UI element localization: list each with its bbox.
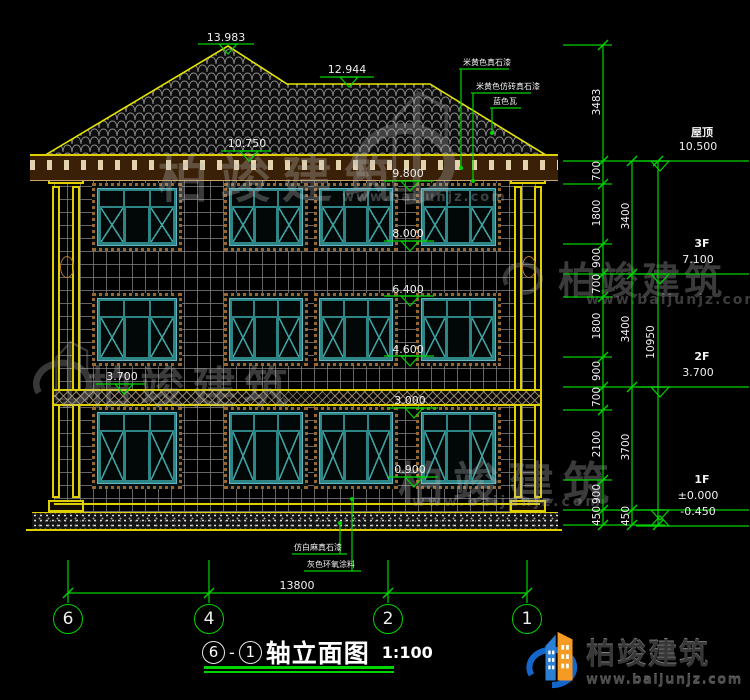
dimension-value: 1800 (591, 191, 603, 235)
level-symbol (401, 356, 419, 366)
dimension-value: 3483 (591, 80, 603, 124)
storey-label: 屋顶 (672, 124, 732, 140)
dimension-value: 450 (591, 494, 603, 538)
dimension-value: 10950 (645, 320, 657, 364)
brand-name: 柏竣建筑 (586, 631, 743, 673)
leader-dot (459, 166, 463, 170)
axis-bubble: 2 (373, 604, 403, 634)
dimension-value: 450 (620, 494, 632, 538)
elevation-value: 8.000 (378, 227, 438, 240)
level-symbol (340, 77, 358, 87)
material-note: 蓝色瓦 (493, 96, 517, 107)
dimension-value: 13800 (267, 579, 327, 592)
level-symbol (401, 296, 419, 306)
elevation-value: 3.700 (92, 370, 152, 383)
elevation-value: -0.450 (666, 505, 730, 518)
dimension-value: 1800 (591, 304, 603, 348)
leader-dot (350, 497, 354, 501)
elevation-value: 13.983 (196, 31, 256, 44)
storey-label: 2F (672, 350, 732, 363)
elevation-value: 6.400 (378, 283, 438, 296)
dimension-value: 3400 (620, 194, 632, 238)
drawing-title: 6 - 1 轴立面图 1:100 (202, 634, 433, 670)
elevation-value: 10.500 (666, 140, 730, 153)
brand-logo: 柏竣建筑 www.baijunjz.com (524, 626, 743, 692)
dimension-value: 3700 (620, 425, 632, 469)
elevation-value: 3.000 (380, 394, 440, 407)
axis-bubble: 6 (53, 604, 83, 634)
dimension-value: 700 (591, 262, 603, 306)
title-underline (204, 666, 394, 669)
level-symbol (405, 408, 423, 418)
dimension-value: 700 (591, 149, 603, 193)
cad-elevation-drawing: 米黄色真石漆 米黄色仿砖真石漆 蓝色瓦 仿白麻真石漆 灰色环氧涂料 柏竣建筑 w… (0, 0, 750, 700)
elevation-value: 10.750 (217, 137, 277, 150)
dimension-value: 700 (591, 375, 603, 419)
level-symbol (115, 384, 133, 394)
storey-label: 1F (672, 473, 732, 486)
dimension-value: 2100 (591, 422, 603, 466)
level-symbol (401, 181, 419, 191)
level-symbol (651, 387, 669, 397)
axis-bubble-end: 1 (239, 641, 262, 664)
material-note: 米黄色真石漆 (463, 57, 511, 68)
elevation-value: 9.800 (378, 167, 438, 180)
material-note: 灰色环氧涂料 (307, 559, 355, 570)
elevation-value: 0.900 (380, 463, 440, 476)
elevation-value: 3.700 (666, 366, 730, 379)
material-note: 米黄色仿砖真石漆 (476, 81, 540, 92)
brand-logo-icon (524, 626, 580, 692)
material-note: 仿白麻真石漆 (294, 542, 342, 553)
axis-bubble: 4 (194, 604, 224, 634)
dimension-value: 3400 (620, 307, 632, 351)
brand-url: www.baijunjz.com (586, 673, 743, 688)
leader-dot (490, 131, 494, 135)
leader-dot (471, 179, 475, 183)
level-symbol (401, 241, 419, 251)
axis-bubble: 1 (512, 604, 542, 634)
level-symbol (240, 151, 258, 161)
title-scale: 1:100 (382, 643, 433, 662)
level-symbol (219, 44, 237, 54)
elevation-value: 7.100 (666, 253, 730, 266)
level-symbol (651, 274, 669, 284)
elevation-value: 4.600 (378, 343, 438, 356)
title-separator: - (229, 643, 235, 662)
title-text: 轴立面图 (266, 634, 370, 670)
elevation-value: 12.944 (317, 63, 377, 76)
dimension-overlay (0, 0, 750, 700)
storey-label: 3F (672, 237, 732, 250)
elevation-value: ±0.000 (666, 489, 730, 502)
title-underline (204, 671, 394, 673)
level-symbol (405, 477, 423, 487)
leader-dot (338, 521, 342, 525)
axis-bubble-start: 6 (202, 641, 225, 664)
